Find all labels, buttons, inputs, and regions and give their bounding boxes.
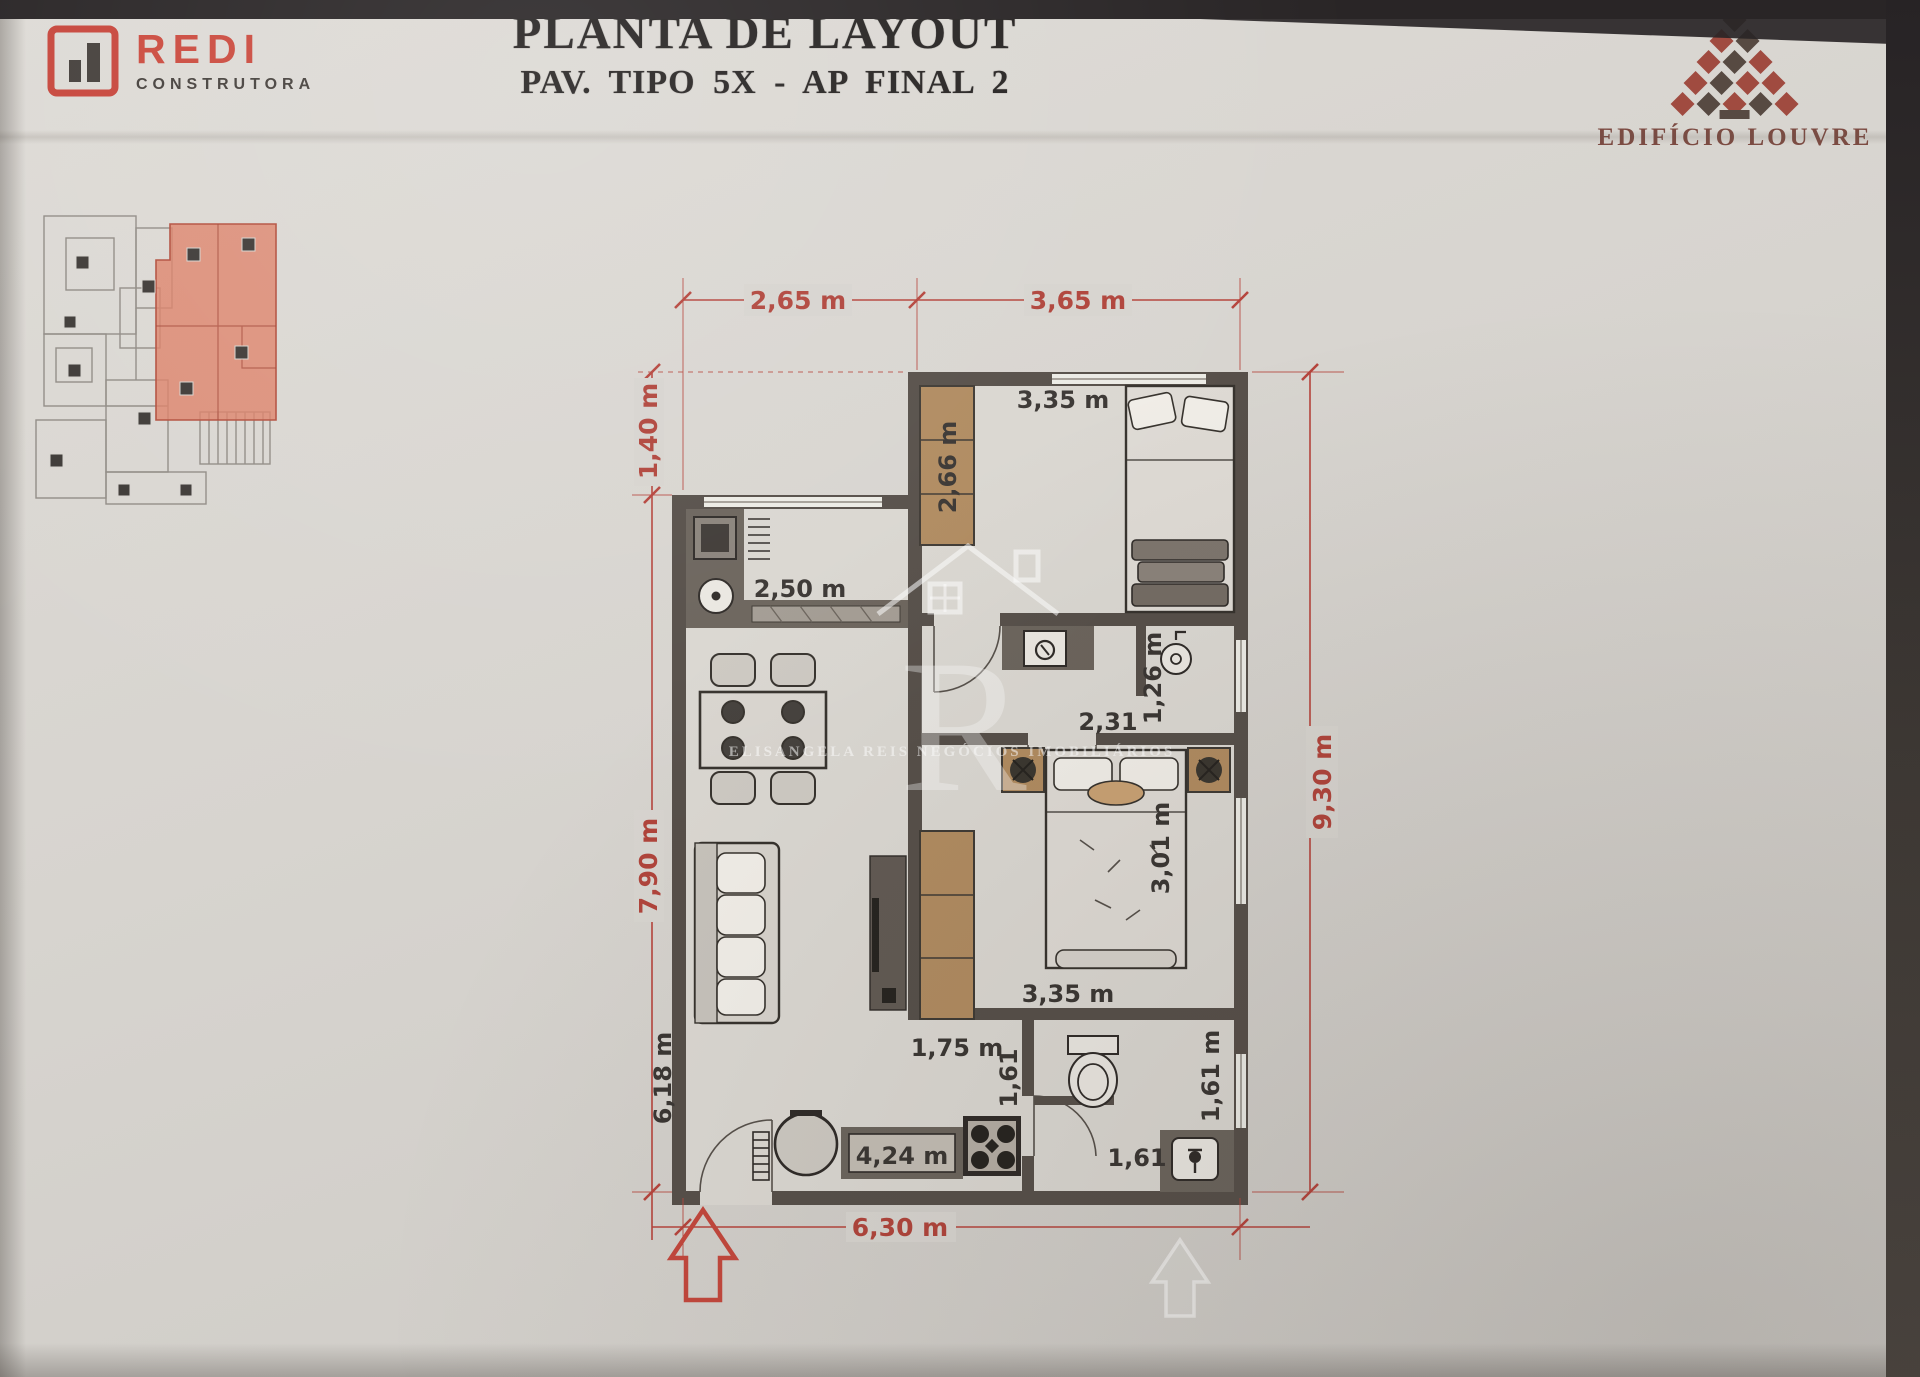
bed-bench <box>1056 950 1176 968</box>
sofa-cushion <box>717 895 765 935</box>
photo-right-edge <box>1886 0 1920 1377</box>
peninsula-countertop <box>752 606 900 622</box>
folded-blanket <box>1132 540 1228 560</box>
tv-panel <box>870 856 906 1010</box>
tv-icon <box>872 898 879 972</box>
dining-chair <box>711 654 755 686</box>
photo-top-edge <box>1200 19 1920 45</box>
dimension-label: 6,30 m <box>852 1213 948 1242</box>
page-subtitle: PAV. TIPO 5X - AP FINAL 2 <box>513 64 1018 102</box>
dining-chair <box>771 772 815 804</box>
wardrobe <box>920 831 974 1019</box>
floor-plan: R ELISANGELA REIS NEGÓCIOS IMOBILIÁRIOS <box>615 270 1355 1330</box>
photographed-floor-plan-sheet: REDI CONSTRUTORA PLANTA DE LAYOUT PAV. T… <box>0 0 1920 1377</box>
shower-icon <box>1160 1130 1234 1192</box>
wall-segment <box>772 1191 1248 1205</box>
sofa-cushion <box>717 979 765 1015</box>
neighbor-entrance-arrow-icon <box>1152 1240 1208 1316</box>
dimension-label: 3,01 m <box>1147 802 1175 895</box>
dining-chair <box>711 772 755 804</box>
folded-blanket <box>1138 562 1224 582</box>
dimension-label: 2,50 m <box>754 575 847 603</box>
sofa <box>695 843 779 1023</box>
toilet-icon <box>1068 1036 1118 1107</box>
dimension-label: 2,66 m <box>934 421 962 514</box>
bolster-pillow <box>1088 781 1144 805</box>
redi-brand-tagline: CONSTRUTORA <box>136 76 315 94</box>
dimension-label: 1,40 m <box>634 383 663 479</box>
folded-blanket <box>1132 584 1228 606</box>
oven-icon <box>701 524 729 552</box>
sofa-back <box>695 843 717 1023</box>
paper-crease <box>0 130 1920 144</box>
bed-1 <box>1126 386 1234 612</box>
redi-brand-name: REDI <box>136 29 315 70</box>
wall-segment <box>672 1191 700 1205</box>
dimension-label: 1,61 m <box>1197 1030 1225 1123</box>
photo-bottom-shadow <box>0 1343 1920 1377</box>
dimension-label: 6,18 m <box>649 1032 677 1125</box>
dimension-label: 3,35 m <box>1017 386 1110 414</box>
dimension-label: 2,65 m <box>750 286 846 315</box>
dimension-label: 1,75 m <box>911 1034 1004 1062</box>
bar-chart-icon <box>87 43 100 82</box>
dimension-label: 1,26 m <box>1139 632 1167 725</box>
photo-left-shadow <box>0 0 26 1377</box>
photo-top-edge <box>0 0 1920 19</box>
wall-segment <box>1022 1020 1034 1096</box>
key-plan <box>20 168 278 510</box>
redi-logo-icon <box>46 24 120 98</box>
bar-chart-icon <box>69 60 81 82</box>
pillow <box>1181 396 1229 433</box>
sheet-title-block: PLANTA DE LAYOUT PAV. TIPO 5X - AP FINAL… <box>513 6 1018 102</box>
dimension-label: 7,90 m <box>634 818 663 914</box>
dimension-label: 9,30 m <box>1308 734 1337 830</box>
media-box-icon <box>882 988 896 1003</box>
watermark-monogram: R <box>900 622 1027 832</box>
wall-segment <box>1022 1156 1034 1192</box>
dimension-label: 2,31 <box>1078 708 1137 736</box>
dimension-label: 3,35 m <box>1022 980 1115 1008</box>
sink-drain-icon <box>712 592 721 601</box>
fridge-handle <box>790 1110 822 1116</box>
dimension-label: 4,24 m <box>856 1142 949 1170</box>
dimension-label: 3,65 m <box>1030 286 1126 315</box>
watermark-caption: ELISANGELA REIS NEGÓCIOS IMOBILIÁRIOS <box>729 743 1176 760</box>
dimension-label: 1,61 <box>995 1048 1023 1107</box>
wall-segment <box>1000 613 1248 626</box>
entrance-arrow-icon <box>671 1210 735 1300</box>
redi-logo: REDI CONSTRUTORA <box>46 24 315 98</box>
pyramid-entrance <box>1720 110 1750 119</box>
key-plan-highlighted-unit <box>156 224 276 420</box>
redi-logo-frame <box>51 29 115 93</box>
sofa-cushion <box>717 937 765 977</box>
stove-icon <box>963 1116 1021 1176</box>
dining-chair <box>771 654 815 686</box>
nightstand <box>1188 748 1230 792</box>
sofa-cushion <box>717 853 765 893</box>
dimension-label: 1,61 <box>1107 1144 1166 1172</box>
